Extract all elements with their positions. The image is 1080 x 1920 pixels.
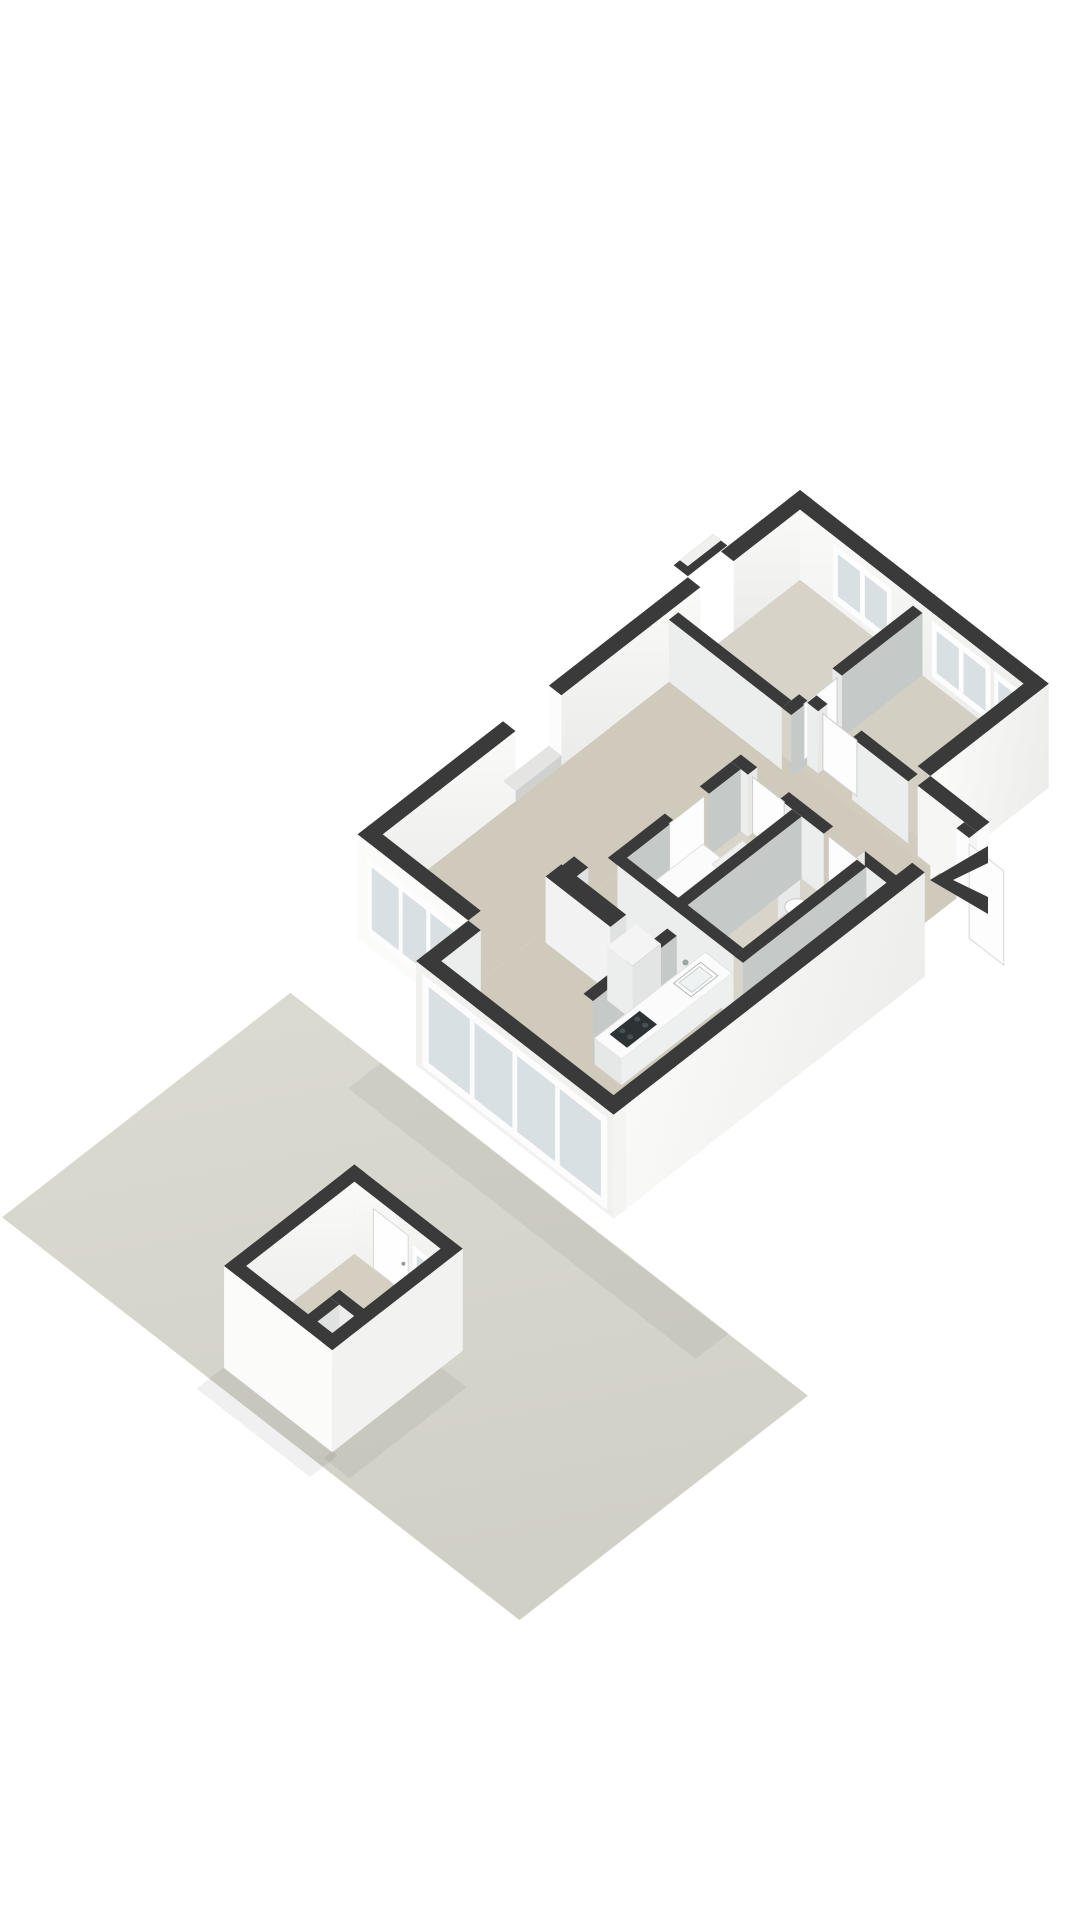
floor-plan-3d-render [0, 0, 1080, 1920]
burner-1 [634, 1017, 640, 1022]
shed-door-handle [401, 1262, 405, 1266]
floor-plan-canvas [0, 0, 1080, 1920]
burner-2 [619, 1028, 625, 1033]
faucet [683, 960, 689, 966]
partition-b-face-upper [807, 703, 818, 774]
window-2-mullion [959, 648, 964, 694]
wall-slide-corner-cap [614, 1105, 627, 1219]
burner-3 [642, 1023, 648, 1028]
window-1-mullion [860, 571, 865, 617]
scene-shapes [2, 490, 1049, 1620]
slide-mullion-2 [512, 1052, 517, 1132]
burner-4 [627, 1034, 633, 1039]
slide-mullion-3 [555, 1085, 560, 1165]
slide-mullion-1 [470, 1019, 475, 1099]
window-west-mullion-1 [399, 888, 403, 953]
